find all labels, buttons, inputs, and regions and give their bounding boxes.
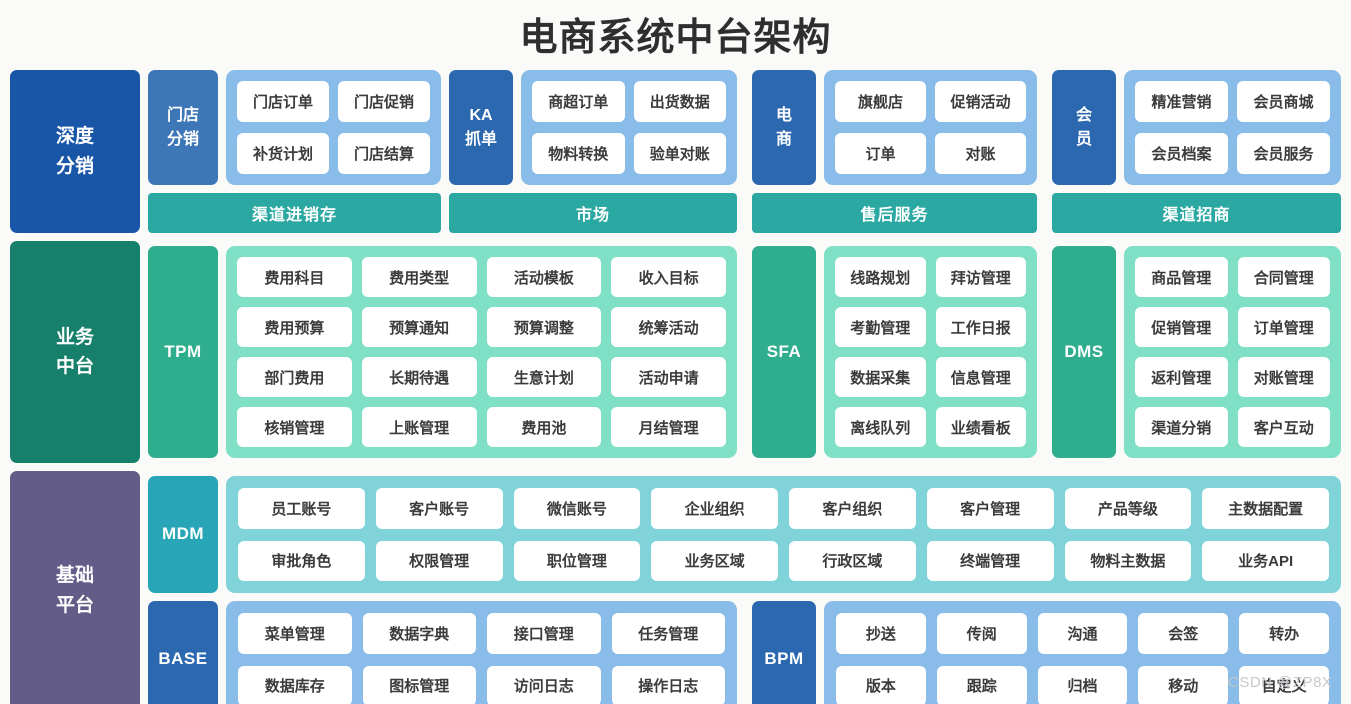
layer-label-depth-distribution: 深度 分销: [10, 70, 140, 233]
module-chip: 收入目标: [611, 257, 726, 297]
module-chip: 对账管理: [1238, 357, 1331, 397]
module-chip: 行政区域: [789, 541, 916, 582]
module-chip: 数据采集: [835, 357, 926, 397]
watermark: CSDN @ZP8X: [1228, 674, 1332, 691]
module-chip: 线路规划: [835, 257, 926, 297]
module-chip: 工作日报: [936, 307, 1027, 347]
group-modules-mdm: 员工账号客户账号微信账号企业组织客户组织客户管理产品等级主数据配置审批角色权限管…: [226, 476, 1341, 593]
flow-bar-market: 市场: [449, 193, 737, 233]
module-chip: 权限管理: [376, 541, 503, 582]
group-tag-sfa: SFA: [752, 246, 816, 458]
module-chip: 抄送: [836, 613, 926, 654]
module-chip: 渠道分销: [1135, 407, 1228, 447]
module-chip: 上账管理: [362, 407, 477, 447]
module-chip: 离线队列: [835, 407, 926, 447]
group-modules-ka-orders: 商超订单出货数据物料转换验单对账: [521, 70, 737, 185]
group-tag-membership: 会 员: [1052, 70, 1116, 185]
module-chip: 微信账号: [514, 488, 641, 529]
group-tag-ka-orders: KA 抓单: [449, 70, 513, 185]
module-chip: 任务管理: [612, 613, 726, 654]
module-chip: 物料主数据: [1065, 541, 1192, 582]
group-tag-bpm: BPM: [752, 601, 816, 704]
module-chip: 活动模板: [487, 257, 602, 297]
module-chip: 归档: [1038, 666, 1128, 704]
module-chip: 移动: [1138, 666, 1228, 704]
module-chip: 操作日志: [612, 666, 726, 704]
module-chip: 跟踪: [937, 666, 1027, 704]
module-chip: 审批角色: [238, 541, 365, 582]
module-chip: 物料转换: [532, 133, 625, 174]
module-chip: 订单管理: [1238, 307, 1331, 347]
module-chip: 门店结算: [338, 133, 430, 174]
module-chip: 费用科目: [237, 257, 352, 297]
module-chip: 月结管理: [611, 407, 726, 447]
module-chip: 门店促销: [338, 81, 430, 122]
module-chip: 商品管理: [1135, 257, 1228, 297]
layer-label-base-platform: 基础 平台: [10, 471, 140, 704]
module-chip: 会员商城: [1237, 81, 1330, 122]
module-chip: 职位管理: [514, 541, 641, 582]
module-chip: 精准营销: [1135, 81, 1228, 122]
module-chip: 长期待遇: [362, 357, 477, 397]
module-chip: 生意计划: [487, 357, 602, 397]
module-chip: 旗舰店: [835, 81, 926, 122]
module-chip: 业务区域: [651, 541, 778, 582]
module-chip: 统筹活动: [611, 307, 726, 347]
module-chip: 客户管理: [927, 488, 1054, 529]
module-chip: 预算调整: [487, 307, 602, 347]
module-chip: 费用池: [487, 407, 602, 447]
module-chip: 数据字典: [363, 613, 477, 654]
module-chip: 验单对账: [634, 133, 727, 174]
module-chip: 促销管理: [1135, 307, 1228, 347]
module-chip: 活动申请: [611, 357, 726, 397]
module-chip: 对账: [935, 133, 1026, 174]
group-tag-ecommerce: 电 商: [752, 70, 816, 185]
module-chip: 拜访管理: [936, 257, 1027, 297]
module-chip: 产品等级: [1065, 488, 1192, 529]
group-tag-dms: DMS: [1052, 246, 1116, 458]
group-tag-tpm: TPM: [148, 246, 218, 458]
module-chip: 促销活动: [935, 81, 1026, 122]
module-chip: 考勤管理: [835, 307, 926, 347]
group-tag-base: BASE: [148, 601, 218, 704]
group-modules-tpm: 费用科目费用类型活动模板收入目标费用预算预算通知预算调整统筹活动部门费用长期待遇…: [226, 246, 737, 458]
module-chip: 出货数据: [634, 81, 727, 122]
module-chip: 返利管理: [1135, 357, 1228, 397]
module-chip: 访问日志: [487, 666, 601, 704]
module-chip: 会员档案: [1135, 133, 1228, 174]
group-modules-membership: 精准营销会员商城会员档案会员服务: [1124, 70, 1341, 185]
group-modules-base: 菜单管理数据字典接口管理任务管理数据库存图标管理访问日志操作日志: [226, 601, 737, 704]
module-chip: 员工账号: [238, 488, 365, 529]
module-chip: 主数据配置: [1202, 488, 1329, 529]
module-chip: 转办: [1239, 613, 1329, 654]
module-chip: 客户组织: [789, 488, 916, 529]
diagram-title: 电商系统中台架构: [0, 6, 1351, 61]
module-chip: 预算通知: [362, 307, 477, 347]
flow-bar-channel-inventory: 渠道进销存: [148, 193, 441, 233]
module-chip: 数据库存: [238, 666, 352, 704]
module-chip: 客户互动: [1238, 407, 1331, 447]
module-chip: 企业组织: [651, 488, 778, 529]
module-chip: 会员服务: [1237, 133, 1330, 174]
flow-bar-after-sales: 售后服务: [752, 193, 1037, 233]
layer-label-business-middle: 业务 中台: [10, 241, 140, 463]
group-modules-store-distribution: 门店订单门店促销补货计划门店结算: [226, 70, 441, 185]
group-modules-sfa: 线路规划拜访管理考勤管理工作日报数据采集信息管理离线队列业绩看板: [824, 246, 1037, 458]
module-chip: 门店订单: [237, 81, 329, 122]
module-chip: 合同管理: [1238, 257, 1331, 297]
module-chip: 业务API: [1202, 541, 1329, 582]
module-chip: 业绩看板: [936, 407, 1027, 447]
module-chip: 订单: [835, 133, 926, 174]
module-chip: 费用预算: [237, 307, 352, 347]
module-chip: 沟通: [1038, 613, 1128, 654]
module-chip: 费用类型: [362, 257, 477, 297]
module-chip: 接口管理: [487, 613, 601, 654]
module-chip: 核销管理: [237, 407, 352, 447]
module-chip: 客户账号: [376, 488, 503, 529]
module-chip: 会签: [1138, 613, 1228, 654]
module-chip: 传阅: [937, 613, 1027, 654]
module-chip: 菜单管理: [238, 613, 352, 654]
module-chip: 图标管理: [363, 666, 477, 704]
flow-bar-channel-investment: 渠道招商: [1052, 193, 1341, 233]
module-chip: 部门费用: [237, 357, 352, 397]
module-chip: 商超订单: [532, 81, 625, 122]
module-chip: 信息管理: [936, 357, 1027, 397]
group-tag-mdm: MDM: [148, 476, 218, 593]
module-chip: 补货计划: [237, 133, 329, 174]
group-modules-ecommerce: 旗舰店促销活动订单对账: [824, 70, 1037, 185]
architecture-diagram: 电商系统中台架构 深度 分销 门店 分销 门店订单门店促销补货计划门店结算 KA…: [0, 0, 1351, 704]
module-chip: 版本: [836, 666, 926, 704]
group-tag-store-distribution: 门店 分销: [148, 70, 218, 185]
group-modules-dms: 商品管理合同管理促销管理订单管理返利管理对账管理渠道分销客户互动: [1124, 246, 1341, 458]
module-chip: 终端管理: [927, 541, 1054, 582]
